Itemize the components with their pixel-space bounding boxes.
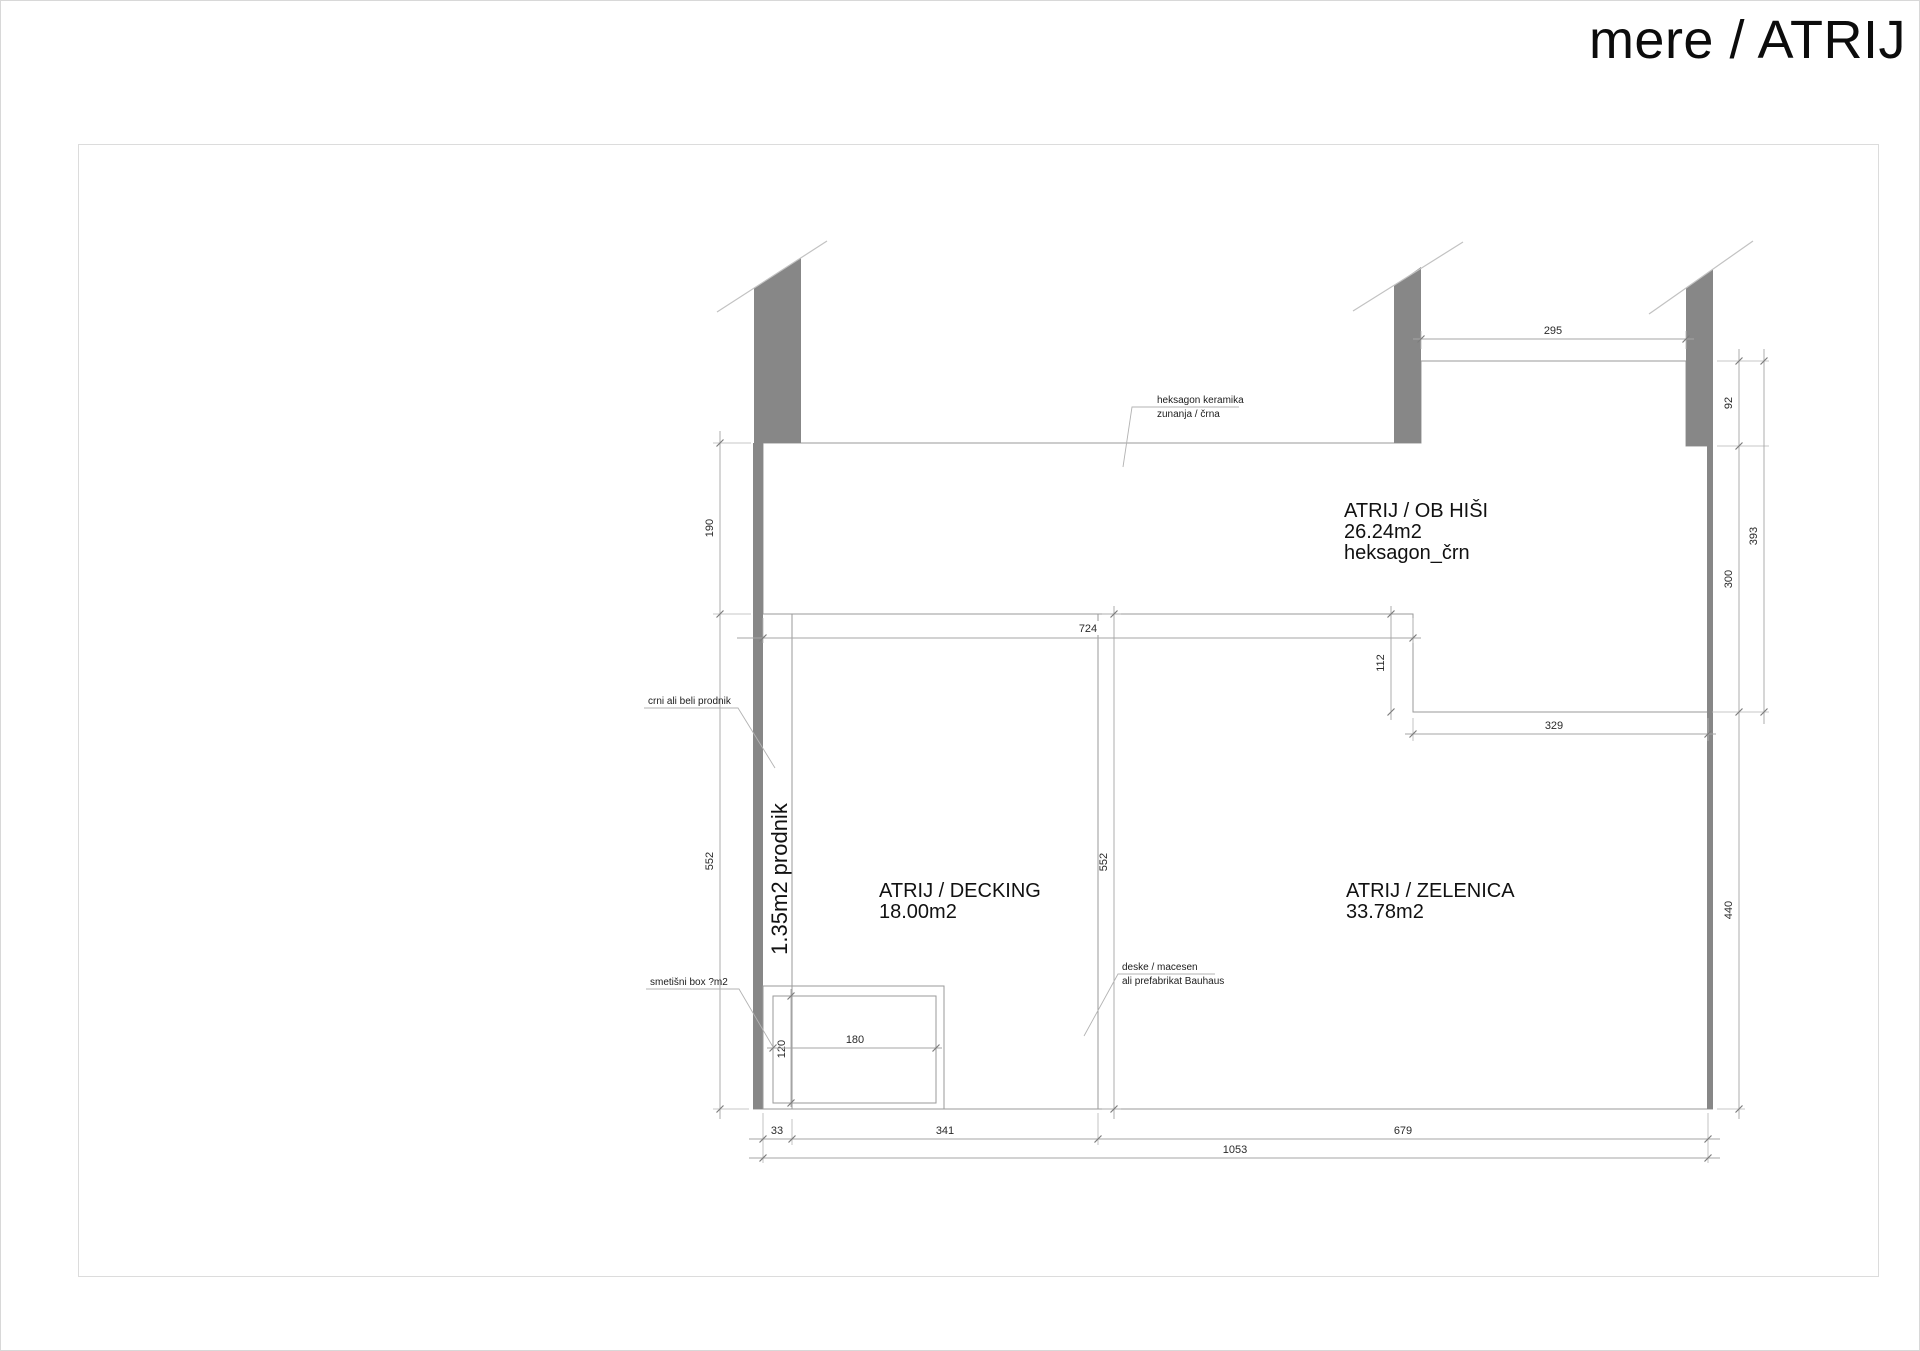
dim-extension-lines: [713, 443, 751, 1109]
dim-value-552-mid: 552: [1098, 853, 1110, 871]
dim-value-329: 329: [1545, 720, 1563, 732]
dim-value-724: 724: [1079, 623, 1097, 635]
room-label-zelenica: ATRIJ / ZELENICA 33.78m2: [1346, 880, 1515, 923]
dim-right-chain: 92 300 440: [1712, 349, 1769, 1119]
dim-value-112: 112: [1375, 654, 1387, 672]
trash-box-outer: [763, 986, 944, 1109]
wall-right-strip: [1707, 446, 1713, 1109]
wall-middle: [1394, 267, 1421, 443]
hexagon-ceramic-area: [763, 361, 1708, 712]
dim-notch-112: 112: [1375, 606, 1395, 720]
dim-value-440: 440: [1723, 901, 1735, 919]
dim-left-vertical: 190 552: [704, 431, 751, 1119]
label-deske-line1: deske / macesen: [1122, 962, 1198, 973]
room-ob-hisi-area: 26.24m2: [1344, 521, 1422, 543]
dim-right-overall: 393: [1748, 349, 1768, 724]
dim-bottom-overall: 1053: [749, 1144, 1720, 1162]
dim-notch-329: 329: [1405, 718, 1716, 741]
dim-value-180: 180: [846, 1034, 864, 1046]
atrium-plan-drawing: 33 341 679 1053 190 552 724: [1, 1, 1920, 1351]
dim-value-1053: 1053: [1223, 1144, 1247, 1156]
wall-left-strip: [753, 443, 763, 1109]
label-prodnik-text: crni ali beli prodnik: [648, 696, 732, 707]
dim-value-190: 190: [704, 519, 716, 537]
trash-box-inner: [773, 996, 936, 1103]
label-deske: deske / macesen ali prefabrikat Bauhaus: [1084, 962, 1224, 1036]
label-smetisni-text: smetišni box ?m2: [650, 977, 728, 988]
decking-planks-surface: [792, 614, 1098, 1109]
room-zelenica-area: 33.78m2: [1346, 901, 1424, 923]
dim-top-opening: 295: [1413, 325, 1694, 349]
dim-value-92: 92: [1723, 397, 1735, 409]
label-heksagon-line2: zunanja / črna: [1157, 409, 1220, 420]
decking-area: [792, 614, 1098, 1109]
hexagon-ceramic-surface: [763, 361, 1708, 712]
room-ob-hisi-name: ATRIJ / OB HIŠI: [1344, 499, 1488, 522]
room-zelenica-name: ATRIJ / ZELENICA: [1346, 880, 1515, 902]
drawing-canvas: mere / ATRIJ: [0, 0, 1920, 1351]
dim-value-120: 120: [776, 1040, 788, 1058]
room-label-prodnik-strip: 1.35m2 prodnik: [767, 802, 792, 955]
room-label-decking: ATRIJ / DECKING 18.00m2: [873, 879, 1041, 923]
prodnik-strip-label: 1.35m2 prodnik: [767, 802, 792, 955]
room-ob-hisi-material: heksagon_črn: [1344, 542, 1470, 564]
dim-mid-552: 552: [1098, 606, 1121, 1119]
dim-724: 724: [737, 618, 1421, 643]
room-decking-name: ATRIJ / DECKING: [879, 880, 1041, 902]
wall-left: [754, 258, 801, 443]
dim-value-33: 33: [771, 1125, 783, 1137]
dim-box-180: 180: [767, 1034, 942, 1052]
dim-value-300: 300: [1723, 570, 1735, 588]
dim-value-295: 295: [1544, 325, 1562, 337]
wall-right: [1686, 269, 1713, 446]
dim-value-393: 393: [1748, 527, 1760, 545]
dim-value-552-left: 552: [704, 852, 716, 870]
trash-box: [763, 986, 944, 1109]
label-heksagon-line1: heksagon keramika: [1157, 395, 1244, 406]
room-label-ob-hisi: ATRIJ / OB HIŠI 26.24m2 heksagon_črn: [1338, 493, 1514, 564]
label-deske-line2: ali prefabrikat Bauhaus: [1122, 976, 1224, 987]
label-heksagon-keramika: heksagon keramika zunanja / črna: [1123, 395, 1244, 467]
room-decking-area: 18.00m2: [879, 901, 957, 923]
dim-value-341: 341: [936, 1125, 954, 1137]
walls: [753, 258, 1713, 1109]
dim-extension-lines: [1712, 361, 1769, 1109]
section-cut-lines: [717, 241, 1753, 314]
dim-value-679: 679: [1394, 1125, 1412, 1137]
